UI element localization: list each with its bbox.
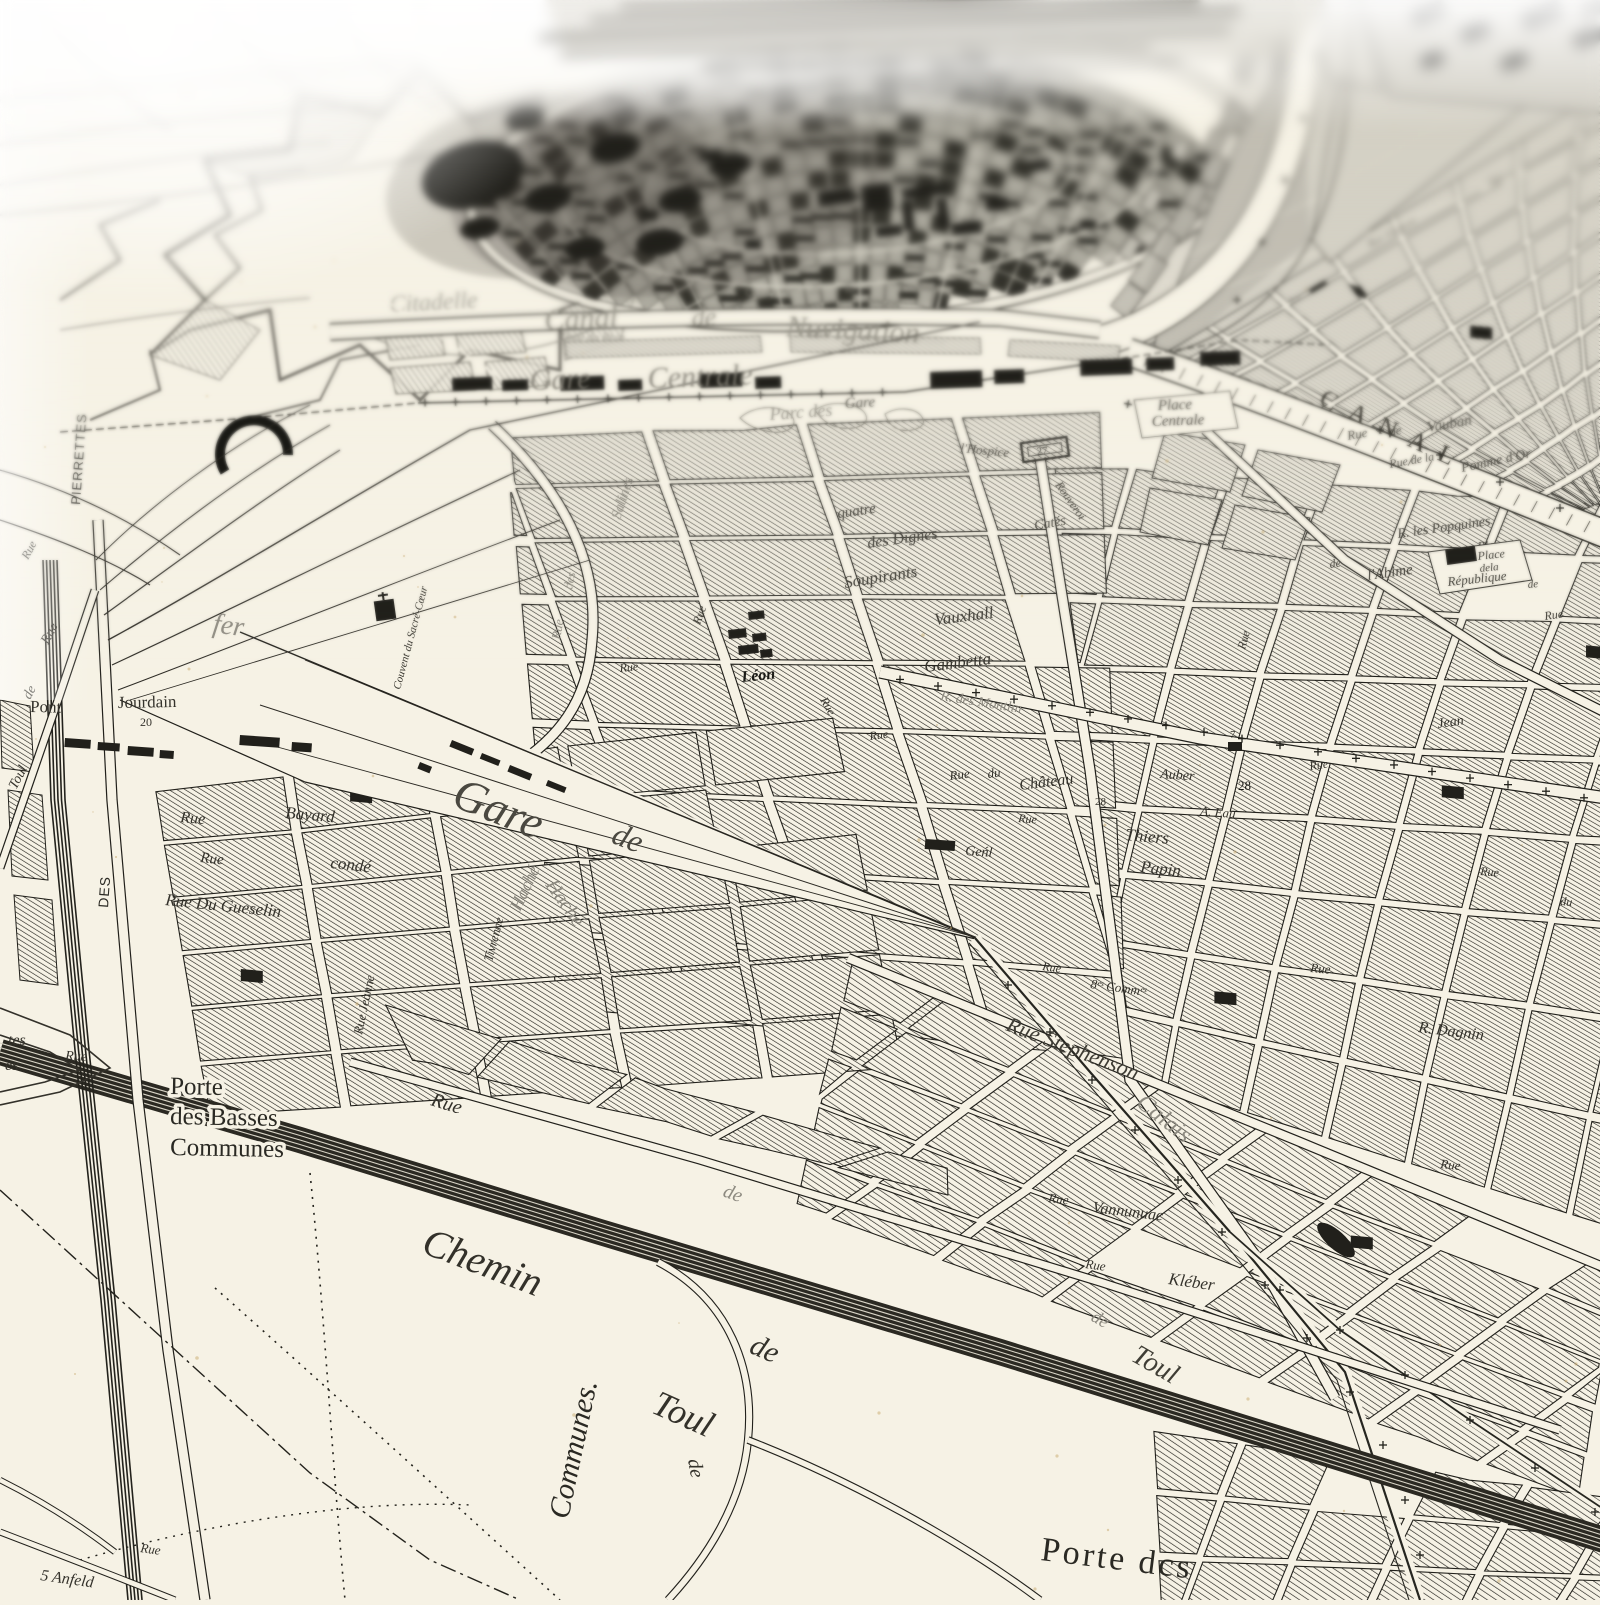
svg-text:Rue: Rue: [1479, 864, 1500, 880]
svg-text:Place: Place: [1157, 397, 1193, 414]
svg-text:Geńl: Geńl: [965, 844, 993, 861]
svg-text:Rue: Rue: [1307, 756, 1329, 773]
svg-text:Rue: Rue: [1439, 1156, 1462, 1173]
svg-text:Rue: Rue: [1084, 1256, 1107, 1274]
svg-text:de: de: [810, 282, 823, 297]
svg-text:fer: fer: [211, 608, 246, 643]
svg-text:des Basses: des Basses: [170, 1103, 278, 1132]
svg-text:Rue: Rue: [1041, 959, 1063, 976]
svg-text:Centrale: Centrale: [1152, 412, 1205, 430]
svg-text:du: du: [987, 764, 1002, 781]
svg-text:Léon: Léon: [740, 666, 776, 687]
svg-text:Jourdain: Jourdain: [118, 692, 177, 712]
svg-text:Quai: Quai: [745, 283, 772, 299]
svg-text:Citadelle: Citadelle: [389, 287, 479, 318]
svg-text:Thiers: Thiers: [1125, 825, 1170, 848]
svg-text:A. Eau: A. Eau: [1199, 803, 1237, 821]
svg-text:tes: tes: [8, 1032, 26, 1049]
svg-text:Rue: Rue: [1047, 1190, 1070, 1208]
svg-text:DES: DES: [95, 875, 113, 908]
svg-text:Canal: Canal: [544, 300, 619, 337]
svg-text:Rue: Rue: [1309, 960, 1332, 977]
svg-text:7: 7: [1230, 729, 1236, 741]
svg-text:Rue: Rue: [1017, 811, 1038, 827]
svg-text:Gare: Gare: [844, 394, 875, 412]
svg-text:es: es: [5, 1057, 18, 1074]
svg-text:Communes: Communes: [170, 1134, 284, 1163]
svg-text:Rue: Rue: [618, 659, 640, 675]
svg-text:de: de: [691, 302, 717, 332]
svg-text:27: 27: [1036, 445, 1049, 458]
svg-text:28: 28: [1238, 778, 1251, 793]
svg-text:Rue: Rue: [948, 766, 971, 784]
svg-text:Gare: Gare: [529, 362, 591, 397]
svg-text:du: du: [1560, 894, 1573, 909]
svg-text:Tamise: Tamise: [905, 279, 942, 295]
svg-text:Rue: Rue: [64, 1049, 88, 1065]
svg-text:Rue: Rue: [1542, 606, 1564, 623]
svg-text:Porte: Porte: [170, 1073, 223, 1101]
svg-text:de: de: [683, 1457, 708, 1480]
svg-text:la: la: [845, 281, 856, 296]
svg-text:Rue: Rue: [868, 727, 890, 743]
svg-text:20: 20: [140, 715, 152, 729]
svg-text:Navigation: Navigation: [785, 310, 921, 350]
svg-text:Rue: Rue: [139, 1540, 162, 1558]
svg-text:Rue: Rue: [199, 850, 225, 868]
svg-text:Auber: Auber: [1159, 767, 1196, 784]
svg-text:Rue: Rue: [179, 809, 206, 828]
svg-text:Centrale: Centrale: [647, 358, 753, 395]
svg-text:28: 28: [1095, 796, 1107, 808]
